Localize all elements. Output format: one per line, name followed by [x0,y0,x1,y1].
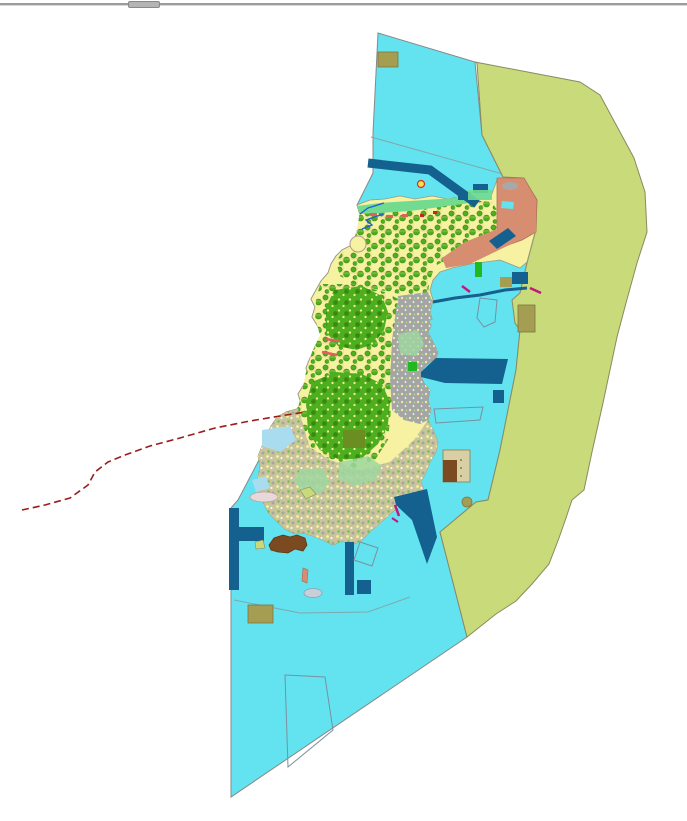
khaki-parcel-south [248,605,273,623]
tan-parcel-dot [460,467,462,469]
sandbank-south [304,589,322,598]
south-harbor-square [357,580,371,594]
greenbelt-rect-ne [468,190,492,200]
khaki-parcel-north [378,52,398,67]
khaki-parcel-east-small [500,277,512,287]
lighthouse-marker [418,181,425,188]
tan-parcel-dot [460,475,462,477]
bright-green-rect-2 [475,262,482,277]
khaki-dot [462,497,472,507]
harbor-rect-bay [493,390,504,403]
olive-field-rect [343,430,365,448]
green-islet-2 [255,540,265,549]
khaki-parcel-east [518,305,535,332]
map-canvas[interactable] [0,6,687,821]
harbor-basin-bay [421,358,508,384]
coast-knob [350,236,366,252]
brown-port-blob [269,535,307,553]
salmon-islet [302,568,308,583]
south-harbor-bar [345,542,354,595]
harbor-rect-east [512,272,528,284]
tan-parcel-dot [460,459,462,461]
brown-parcel-part [443,460,457,482]
bright-green-rect-1 [408,362,417,371]
sw-pier-arm [238,527,264,541]
sandbank-west [250,492,278,502]
sw-pier-bar [229,508,239,590]
gray-blob-in-resort [502,182,518,190]
